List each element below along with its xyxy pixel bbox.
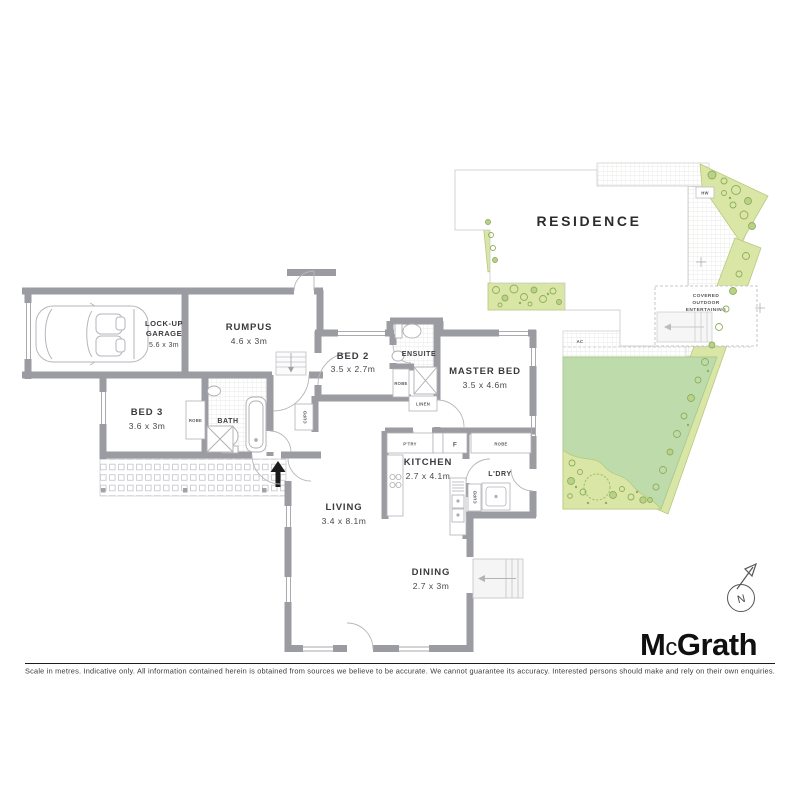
plant-icon [709, 342, 715, 348]
garage-label-1: LOCK-UP [145, 319, 183, 328]
laundry-label: L'DRY [488, 471, 511, 478]
robe-master-label: ROBE [494, 442, 507, 447]
cupd-hall-label: CUPD [303, 410, 308, 423]
deck [100, 459, 286, 496]
rumpus-dims: 4.6 x 3m [231, 336, 268, 346]
hot-water-unit: HW [696, 187, 714, 198]
footer: Scale in metres. Indicative only. All in… [25, 664, 775, 676]
pantry-label: P'TRY [403, 442, 417, 447]
plant-icon [749, 223, 756, 230]
ensuite-label: ENSUITE [402, 351, 437, 358]
plant-icon [729, 197, 731, 199]
robe-bed2-label: ROBE [394, 381, 407, 386]
logo-c: c [665, 634, 677, 661]
dining-dims: 2.7 x 3m [413, 581, 450, 591]
plant-icon [568, 478, 575, 485]
svg-text:McGrath: McGrath [640, 627, 757, 662]
plant-icon [730, 288, 737, 295]
plant-icon [745, 198, 752, 205]
plant-icon [605, 502, 607, 504]
hall-stairs [276, 352, 306, 375]
garage-label-2: GARAGE [146, 329, 182, 338]
covered-label-1: COVERED [693, 293, 720, 299]
master-bed-label: MASTER BED [449, 366, 521, 377]
plant-icon [708, 171, 716, 179]
floorplan-canvas: COVERED OUTDOOR ENTERTAINING HW AC RESID… [0, 0, 800, 800]
covered-outdoor-area: COVERED OUTDOOR ENTERTAINING [655, 286, 757, 346]
plant-icon [493, 258, 498, 263]
plant-icon [519, 302, 521, 304]
bed2-label: BED 2 [337, 351, 369, 362]
kitchen-label: KITCHEN [404, 457, 453, 468]
bed3-dims: 3.6 x 3m [129, 421, 166, 431]
kitchen-dims: 2.7 x 4.1m [406, 471, 451, 481]
covered-label-3: ENTERTAINING [686, 307, 726, 313]
north-compass-icon: N [728, 564, 757, 612]
plant-icon [667, 449, 673, 455]
plant-icon [636, 491, 638, 493]
plant-icon [557, 300, 562, 305]
plant-icon [687, 424, 689, 426]
residence-footprint [455, 170, 688, 346]
plant-icon [707, 370, 709, 372]
rumpus-label: RUMPUS [226, 322, 273, 333]
floor-plan: LOCK-UP GARAGE 5.6 x 3m RUMPUS 4.6 x 3m … [22, 271, 536, 652]
plant-icon [688, 395, 695, 402]
compass-n-label: N [736, 593, 747, 607]
covered-label-2: OUTDOOR [692, 300, 719, 306]
ac-label: AC [577, 339, 584, 344]
logo-m: M [640, 627, 665, 662]
cupd-laundry-label: CUPD [473, 490, 478, 503]
disclaimer-text: Scale in metres. Indicative only. All in… [25, 669, 775, 676]
plant-icon [531, 287, 537, 293]
car-icon [36, 303, 148, 365]
floorplan-page: COVERED OUTDOOR ENTERTAINING HW AC RESID… [0, 0, 800, 800]
hw-label: HW [701, 191, 709, 196]
master-bed-dims: 3.5 x 4.6m [463, 380, 508, 390]
plant-icon [640, 497, 646, 503]
robe-bed3-label: ROBE [189, 418, 202, 423]
garden-bed-mid-strip [488, 283, 565, 310]
plant-icon [587, 502, 589, 504]
bath-label: BATH [217, 418, 238, 425]
bed2-dims: 3.5 x 2.7m [331, 364, 376, 374]
linen-label: LINEN [416, 402, 430, 407]
garage-dims: 5.6 x 3m [149, 342, 179, 349]
plant-icon [547, 293, 549, 295]
plant-icon [486, 220, 491, 225]
site-plan: COVERED OUTDOOR ENTERTAINING HW AC RESID… [455, 163, 768, 514]
fridge-label: F [453, 442, 457, 449]
mcgrath-logo: McGrath [640, 627, 757, 662]
living-dims: 3.4 x 8.1m [322, 516, 367, 526]
residence-label: RESIDENCE [536, 213, 641, 229]
plant-icon [610, 492, 617, 499]
plant-icon [575, 486, 577, 488]
living-label: LIVING [325, 502, 362, 513]
dining-external-stairs [473, 559, 523, 598]
plant-icon [648, 498, 653, 503]
plant-icon [502, 295, 508, 301]
bed3-label: BED 3 [131, 407, 163, 418]
logo-grath: Grath [677, 627, 757, 662]
dining-label: DINING [412, 567, 451, 578]
